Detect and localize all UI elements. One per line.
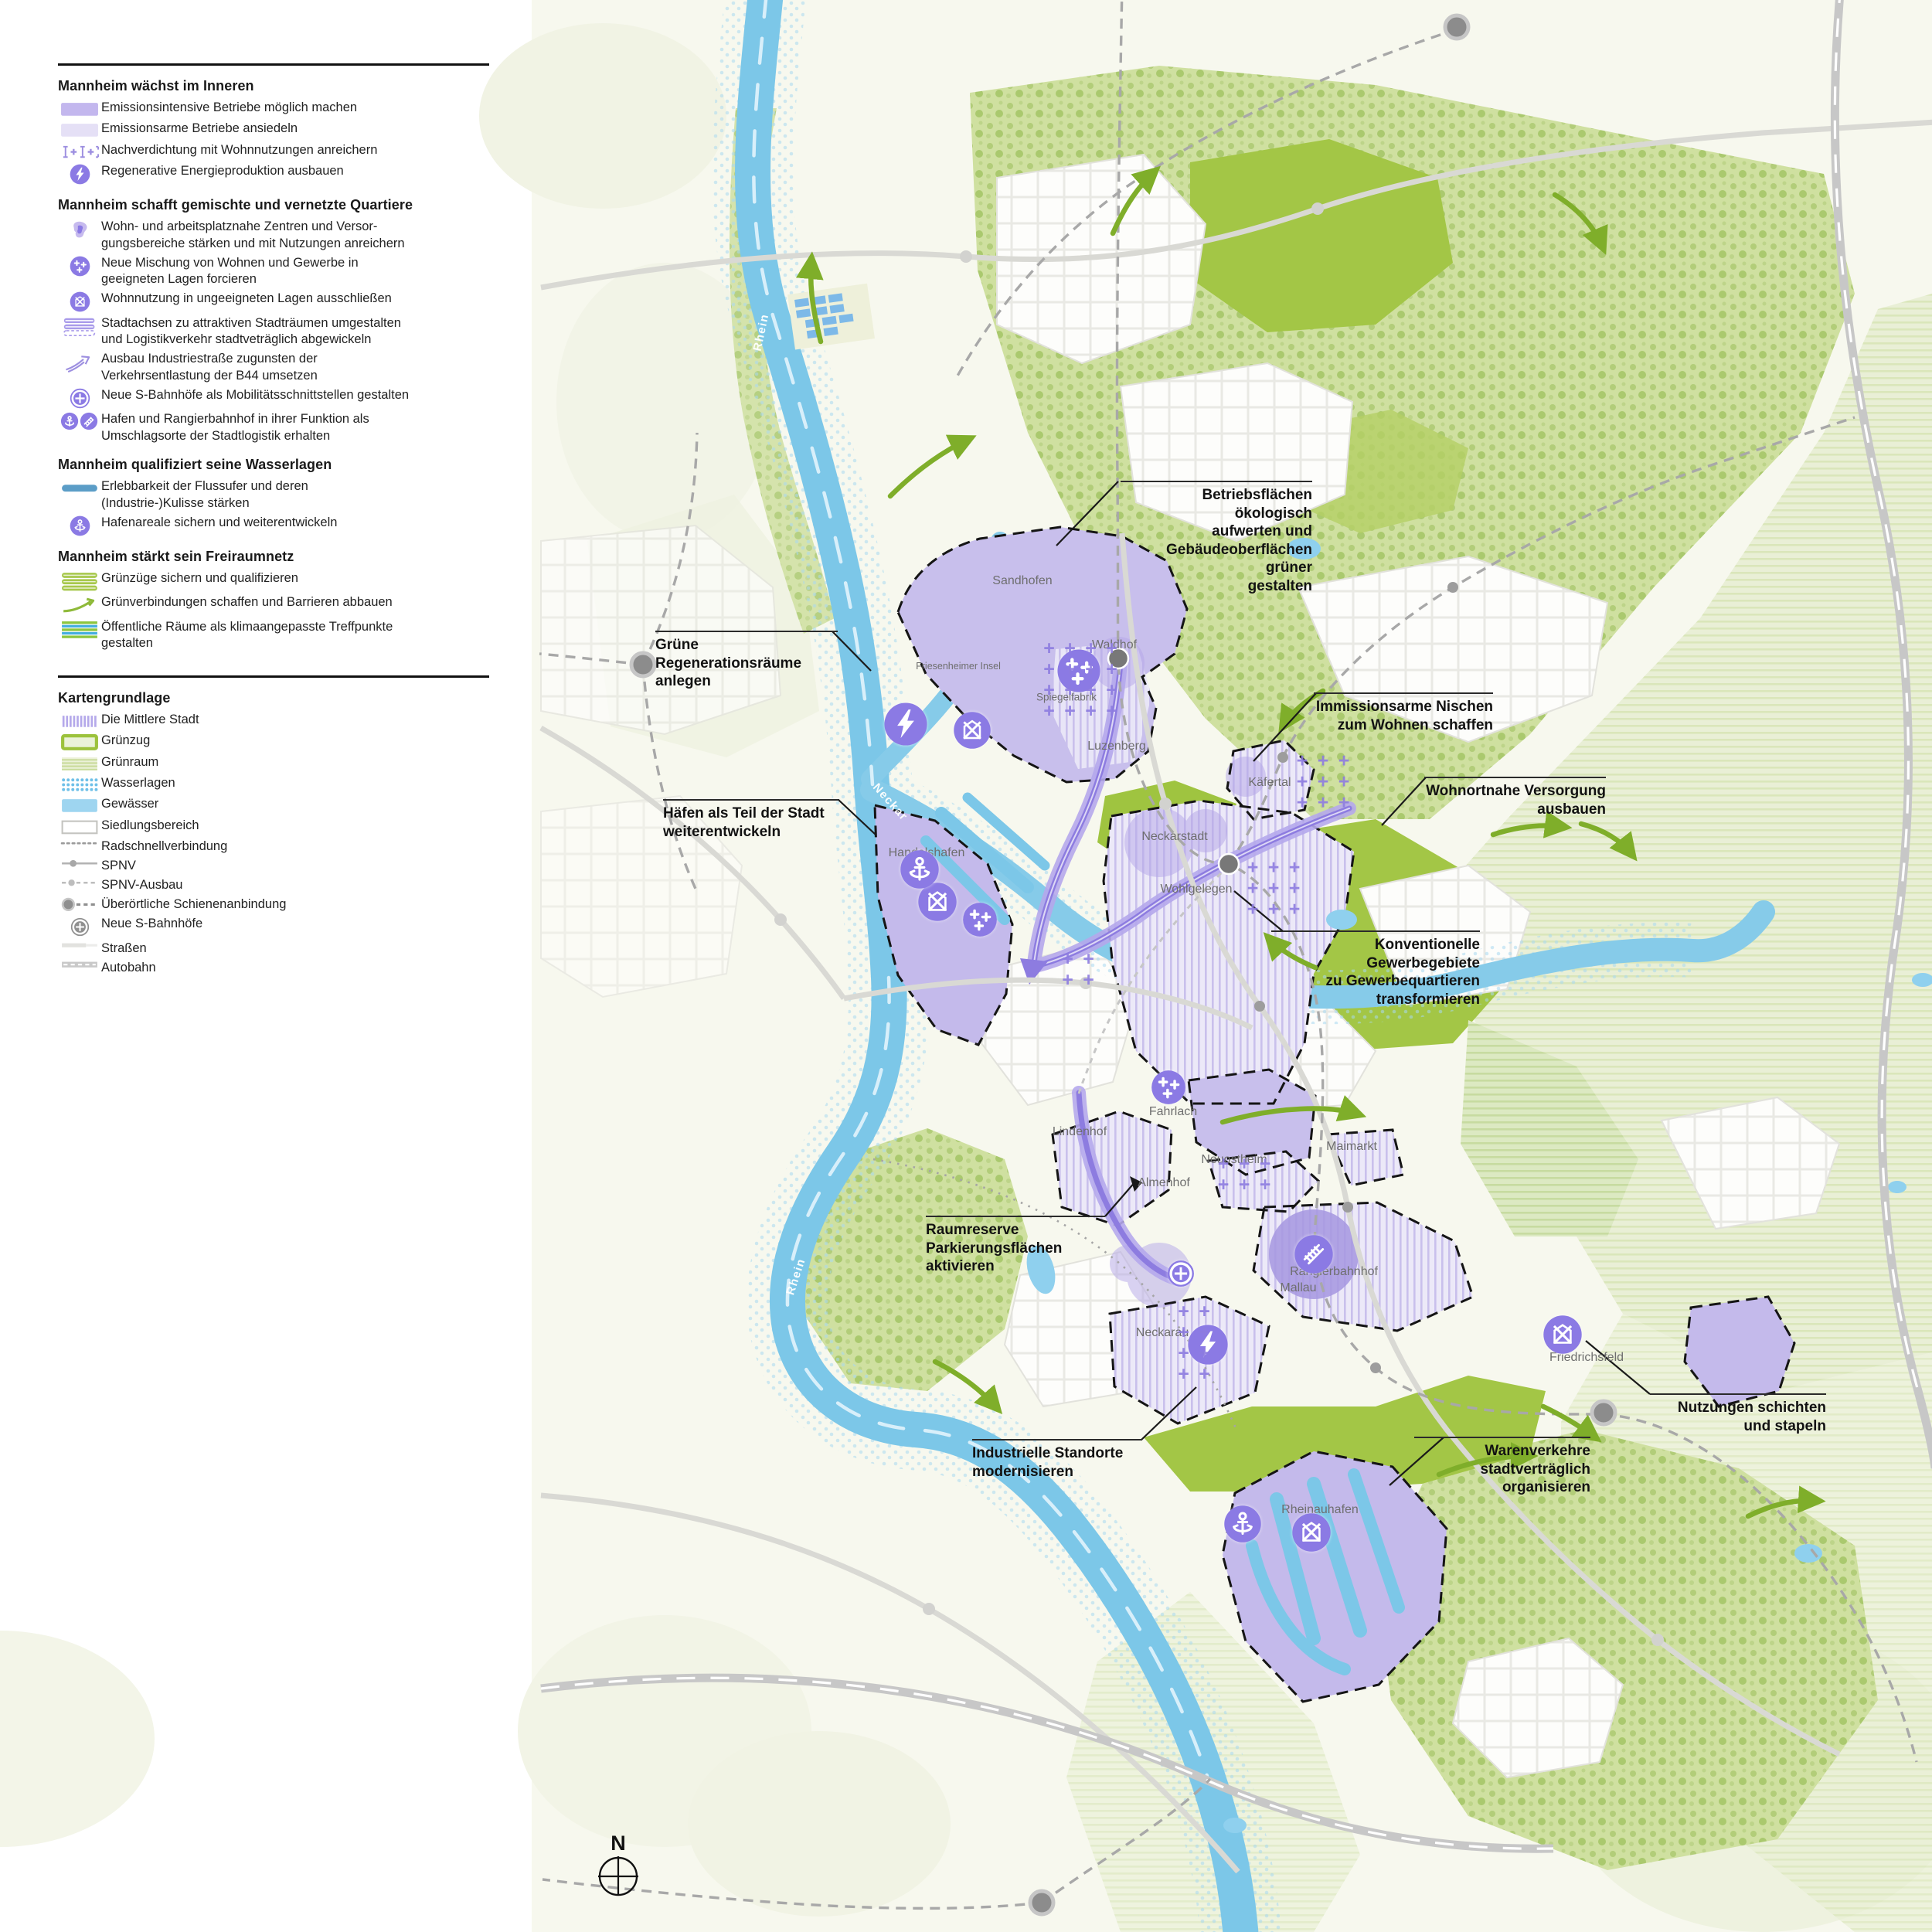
legend-item: Regenerative Energieproduktion ausbauen xyxy=(58,163,489,185)
green-corridor-icon xyxy=(58,571,101,592)
siedlung-icon xyxy=(58,818,101,836)
section-divider xyxy=(58,63,489,66)
legend-item: Hafenareale sichern und weiterentwickeln xyxy=(58,515,489,536)
legend-item: Wohnnutzung in ungeeigneten Lagen aussch… xyxy=(58,291,489,312)
legend-item-label: SPNV-Ausbau xyxy=(101,877,182,894)
city-plan-page: SandhofenFriesenheimer InselWaldhofSpieg… xyxy=(0,0,1932,1932)
legend-item: SPNV-Ausbau xyxy=(58,877,489,894)
legend-item-label: Nachverdichtung mit Wohnnutzungen anreic… xyxy=(101,142,377,159)
riverfront-icon xyxy=(58,479,101,497)
compass-label: N xyxy=(594,1833,643,1853)
legend-item: Grünzüge sichern und qualifizieren xyxy=(58,570,489,592)
legend-item: Die Mittlere Stadt xyxy=(58,712,489,730)
legend-item-label: Wohn- und arbeitsplatznahe Zentren und V… xyxy=(101,219,405,252)
legend-item: Gewässer xyxy=(58,796,489,815)
legend-item-label: Neue S-Bahnhöfe als Mobilitätsschnittste… xyxy=(101,387,409,404)
legend-item-label: Erlebbarkeit der Flussufer und deren (In… xyxy=(101,478,308,512)
schiene-icon xyxy=(58,897,101,912)
legend-section: Mannheim wächst im InnerenEmissionsinten… xyxy=(58,78,489,185)
legend-item-label: Siedlungsbereich xyxy=(101,818,199,835)
legend-item: Grünzug xyxy=(58,733,489,751)
legend-section-title: Mannheim stärkt sein Freiraumnetz xyxy=(58,549,489,565)
green-arrow-icon xyxy=(58,595,101,616)
legend-item-label: Grünverbindungen schaffen und Barrieren … xyxy=(101,594,393,611)
legend-item-label: Stadtachsen zu attraktiven Stadträumen u… xyxy=(101,315,401,349)
legend-section: KartengrundlageDie Mittlere StadtGrünzug… xyxy=(58,690,489,976)
compass-rose-icon xyxy=(594,1853,643,1900)
spnv-icon xyxy=(58,859,101,869)
legend-item-label: Grünzüge sichern und qualifizieren xyxy=(101,570,298,587)
section-divider xyxy=(58,675,489,678)
legend-section-title: Mannheim qualifiziert seine Wasserlagen xyxy=(58,457,489,473)
densify-icon xyxy=(58,143,101,161)
gruenraum-icon xyxy=(58,755,101,773)
legend-item: Erlebbarkeit der Flussufer und deren (In… xyxy=(58,478,489,512)
legend-item-label: SPNV xyxy=(101,858,136,875)
legend-item: Öffentliche Räume als klimaangepasste Tr… xyxy=(58,619,489,652)
legend-item: Neue Mischung von Wohnen und Gewerbe in … xyxy=(58,255,489,288)
legend-item: Stadtachsen zu attraktiven Stadträumen u… xyxy=(58,315,489,349)
compass: N xyxy=(594,1833,643,1903)
legend-section: Mannheim schafft gemischte und vernetzte… xyxy=(58,197,489,444)
legend-item: Wohn- und arbeitsplatznahe Zentren und V… xyxy=(58,219,489,252)
legend-item: Grünraum xyxy=(58,754,489,773)
mixed-use-icon xyxy=(58,256,101,277)
legend-item-label: Ausbau Industriestraße zugunsten der Ver… xyxy=(101,351,318,384)
sbahn-icon xyxy=(58,388,101,409)
legend-item-label: Neue Mischung von Wohnen und Gewerbe in … xyxy=(101,255,359,288)
legend-item-label: Grünraum xyxy=(101,754,158,771)
port-rail-icon xyxy=(58,412,101,430)
legend: Mannheim wächst im InnerenEmissionsinten… xyxy=(58,40,489,979)
legend-item-label: Die Mittlere Stadt xyxy=(101,712,199,729)
legend-item: Hafen und Rangierbahnhof in ihrer Funkti… xyxy=(58,411,489,444)
center-blob-icon xyxy=(58,219,101,240)
legend-item-label: Emissionsarme Betriebe ansiedeln xyxy=(101,121,298,138)
autobahn-icon xyxy=(58,961,101,968)
industry-arrow-icon xyxy=(58,352,101,372)
no-housing-icon xyxy=(58,291,101,312)
legend-item: Siedlungsbereich xyxy=(58,818,489,836)
wasserlagen-icon xyxy=(58,776,101,794)
legend-item: Autobahn xyxy=(58,960,489,977)
legend-section: Mannheim qualifiziert seine WasserlagenE… xyxy=(58,457,489,536)
city-axis-icon xyxy=(58,316,101,337)
gruenzug-icon xyxy=(58,733,101,751)
legend-item-label: Wasserlagen xyxy=(101,775,175,792)
legend-item-label: Überörtliche Schienenanbindung xyxy=(101,896,286,913)
legend-item-label: Hafenareale sichern und weiterentwickeln xyxy=(101,515,337,532)
legend-item-label: Emissionsintensive Betriebe möglich mach… xyxy=(101,100,357,117)
legend-item-label: Straßen xyxy=(101,940,147,957)
radschnell-icon xyxy=(58,839,101,847)
swatch-purple-icon xyxy=(58,100,101,118)
legend-item: Neue S-Bahnhöfe xyxy=(58,916,489,937)
legend-item: Radschnellverbindung xyxy=(58,838,489,855)
spnv-ausbau-icon xyxy=(58,878,101,888)
legend-item-label: Autobahn xyxy=(101,960,156,977)
legend-item-label: Grünzug xyxy=(101,733,150,750)
legend-item: Grünverbindungen schaffen und Barrieren … xyxy=(58,594,489,616)
legend-item: Neue S-Bahnhöfe als Mobilitätsschnittste… xyxy=(58,387,489,409)
legend-section-title: Mannheim schafft gemischte und vernetzte… xyxy=(58,197,489,213)
strassen-icon xyxy=(58,941,101,949)
legend-item-label: Gewässer xyxy=(101,796,158,813)
legend-item: Ausbau Industriestraße zugunsten der Ver… xyxy=(58,351,489,384)
legend-item-label: Radschnellverbindung xyxy=(101,838,227,855)
sbahn-gray-icon xyxy=(58,917,101,937)
public-space-icon xyxy=(58,620,101,639)
solar-field xyxy=(787,284,875,350)
legend-item-label: Hafen und Rangierbahnhof in ihrer Funkti… xyxy=(101,411,369,444)
legend-item: Emissionsarme Betriebe ansiedeln xyxy=(58,121,489,139)
legend-section-title: Mannheim wächst im Inneren xyxy=(58,78,489,94)
legend-section: Mannheim stärkt sein FreiraumnetzGrünzüg… xyxy=(58,549,489,652)
legend-item-label: Wohnnutzung in ungeeigneten Lagen aussch… xyxy=(101,291,392,308)
legend-item-label: Öffentliche Räume als klimaangepasste Tr… xyxy=(101,619,393,652)
legend-item: SPNV xyxy=(58,858,489,875)
legend-item: Emissionsintensive Betriebe möglich mach… xyxy=(58,100,489,118)
energy-icon xyxy=(58,164,101,185)
legend-item: Nachverdichtung mit Wohnnutzungen anreic… xyxy=(58,142,489,161)
gewaesser-icon xyxy=(58,797,101,815)
legend-item: Wasserlagen xyxy=(58,775,489,794)
legend-item-label: Regenerative Energieproduktion ausbauen xyxy=(101,163,344,180)
legend-section-title: Kartengrundlage xyxy=(58,690,489,706)
harbor-icon xyxy=(58,515,101,536)
legend-item-label: Neue S-Bahnhöfe xyxy=(101,916,202,933)
mittlere-stadt-icon xyxy=(58,713,101,730)
legend-item: Straßen xyxy=(58,940,489,957)
swatch-lavender-icon xyxy=(58,121,101,139)
legend-item: Überörtliche Schienenanbindung xyxy=(58,896,489,913)
